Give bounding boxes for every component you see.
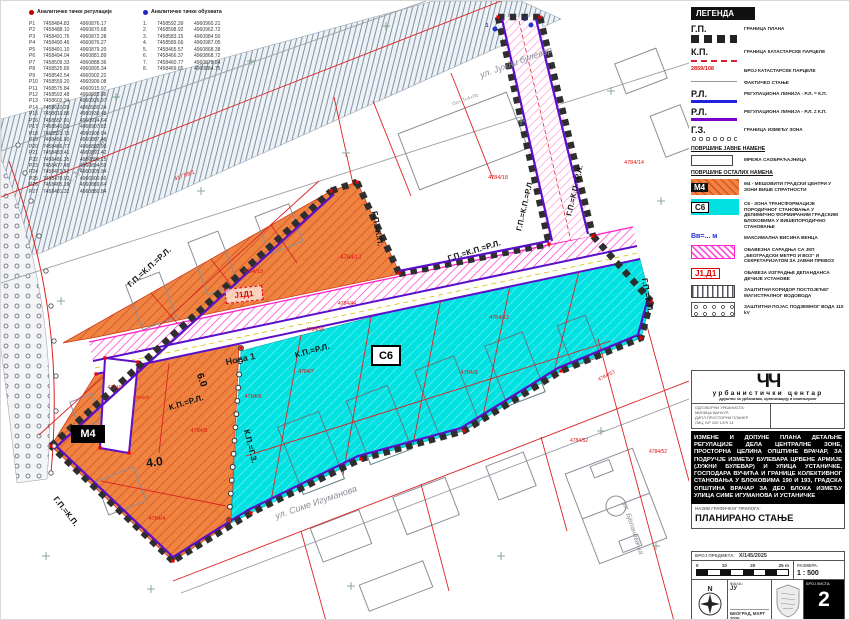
- legend-item-label: МАКСИМАЛНА ВИСИНА ВЕНЦА: [744, 233, 818, 241]
- map-label: ул. Бјелановачка: [620, 501, 644, 556]
- legend-item-label: ГРАНИЦА ИЗМЕЂУ ЗОНА: [744, 125, 803, 133]
- legend-item-label: МРЕЖА САОБРАЋАЈНИЦА: [744, 155, 806, 163]
- m4-symbol-icon: М4: [691, 179, 739, 195]
- case-number: X/145/2025: [739, 553, 767, 559]
- case-number-block: БРОЈ ПРЕДМЕТА: X/145/2025: [691, 551, 845, 561]
- zone-label-s6: С6: [371, 345, 401, 366]
- project-title: ИЗМЕНЕ И ДОПУНЕ ПЛАНА ДЕТАЉНЕ РЕГУЛАЦИЈЕ…: [691, 431, 845, 505]
- scale-bar-segments: [696, 569, 789, 576]
- scale-block: 0 10 20 25 m РАЗМЕРА: 1 : 500: [691, 561, 845, 580]
- j1d1-symbol-icon: Ј1,Д1: [691, 268, 739, 280]
- scale-bar: 0 10 20 25 m: [692, 561, 793, 579]
- zone-m4-lower: [51, 344, 239, 561]
- parcel-symbol-icon: 2859/108: [691, 66, 739, 73]
- legend-item-label: ГРАНИЦА ПЛАНА: [744, 24, 784, 32]
- map-label: 4784/18: [488, 175, 508, 181]
- firm-logo: ЧЧ: [696, 373, 840, 390]
- plan-sheet: ул. Јужни булеварул. Јужни булеварул. Си…: [0, 0, 850, 620]
- legend-item-label: РЕГУЛАЦИОНА ЛИНИЈА - Р.Л. = К.П.: [744, 89, 827, 97]
- map-label: 4784/8: [245, 394, 262, 400]
- svg-text:N: N: [707, 586, 712, 593]
- point-row: 8.7458469.654960884.75: [143, 66, 231, 72]
- legend-list: Г.П.ГРАНИЦА ПЛАНАК.П.ГРАНИЦА КАТАСТАРСКЕ…: [691, 24, 845, 370]
- map-label: 4784/9: [461, 370, 478, 376]
- scale-value-box: РАЗМЕРА: 1 : 500: [793, 561, 844, 579]
- phase-cell: ФАЗА: ЈУ БЕОГРАД, МАРТ 2025.: [728, 580, 772, 620]
- case-number-label: БРОЈ ПРЕДМЕТА:: [695, 553, 735, 558]
- responsible-planner: ОДГОВОРНИ УРБАНИСТА: МИЛИЦА ВАНЧУР, ДИПЛ…: [692, 404, 771, 428]
- phase-value: ЈУ: [730, 586, 769, 609]
- map-label: По+П+4+Пс: [452, 92, 480, 107]
- map-label: Г.П.=К.П.=Р.Л.: [126, 245, 173, 289]
- rl2-symbol-icon: Р.Л.: [691, 107, 739, 121]
- sheet-number: 2: [804, 588, 844, 612]
- legend-item-j1d1: Ј1,Д1ОБАВЕЗА ИЗГРАДЊЕ ДЕПАНДАНСА ДЕЧИЈЕ …: [691, 268, 845, 281]
- map-label: 4784/5: [191, 428, 208, 434]
- legend-item-label: ОБАВЕЗНА САРАДЊА СА ЈКП „БЕОГРАДСКИ МЕТР…: [744, 245, 845, 264]
- rl1-symbol-icon: Р.Л.: [691, 89, 739, 103]
- sheet-number-cell: БРОЈ ЛИСТА: 2: [804, 580, 844, 620]
- drawing-name: ПЛАНИРАНО СТАЊЕ: [695, 513, 841, 524]
- legend-item-rl2: Р.Л.РЕГУЛАЦИОНА ЛИНИЈА - Р.Л. ≠ К.П.: [691, 107, 845, 121]
- stamp-cell: [772, 580, 804, 620]
- gp-symbol-icon: Г.П.: [691, 24, 739, 43]
- legend-item-kv: ЗАШТИТНИ ПОЈАС ПОДЗЕМНОГ ВОДА 110 kV: [691, 302, 845, 317]
- legend-item-label: БРОЈ КАТАСТАРСКЕ ПАРЦЕЛЕ: [744, 66, 816, 74]
- legend-title: ЛЕГЕНДА: [691, 7, 755, 20]
- coverage-table-title: Аналитичке тачке обухвата: [151, 9, 222, 15]
- map-label: Г.П.=К.П.=Р.Л.: [514, 179, 534, 232]
- legend-item-gp: Г.П.ГРАНИЦА ПЛАНА: [691, 24, 845, 43]
- map-label: 4784/7: [298, 369, 314, 375]
- responsible-block: ОДГОВОРНИ УРБАНИСТА: МИЛИЦА ВАНЧУР, ДИПЛ…: [691, 404, 845, 429]
- legend-item-kp: К.П.ГРАНИЦА КАТАСТАРСКЕ ПАРЦЕЛЕ: [691, 47, 845, 62]
- legend-item-s6: С6С6 - ЗОНА ТРАНСФОРМАЦИЈЕ ПОРОДИЧНОГ СТ…: [691, 199, 845, 229]
- legend-item-label: ЗАШТИТНИ ПОЈАС ПОДЗЕМНОГ ВОДА 110 kV: [744, 302, 845, 315]
- map-label: 4784/2: [107, 385, 123, 391]
- legend-section-header: ПОВРШИНЕ ОСТАЛИХ НАМЕНА: [691, 170, 845, 176]
- map-label: Г.П.=К.П.: [52, 495, 81, 528]
- gz-symbol-icon: Г.З.: [691, 125, 739, 142]
- sports-field: [565, 448, 667, 563]
- map-label: 1: [485, 23, 488, 29]
- red-dot-icon: [29, 10, 34, 15]
- kp-symbol-icon: К.П.: [691, 47, 739, 62]
- legend-item-vodovod: ЗАШТИТНИ КОРИДОР ПОСТОЈЕЋЕГ МАГИСТРАЛНОГ…: [691, 285, 845, 298]
- vv-symbol-icon: Вв=... м: [691, 233, 739, 241]
- sidebar: ЛЕГЕНДА Г.П.ГРАНИЦА ПЛАНАК.П.ГРАНИЦА КАТ…: [691, 7, 845, 620]
- scale-value: 1 : 500: [797, 570, 841, 577]
- fact-symbol-icon: [691, 78, 739, 82]
- seal-icon: [775, 584, 801, 618]
- firm-block: ЧЧ урбанистички центар друштво за урбани…: [691, 370, 845, 404]
- legend-item-rl1: Р.Л.РЕГУЛАЦИОНА ЛИНИЈА - Р.Л. = К.П.: [691, 89, 845, 103]
- map-label: 4784/52: [570, 438, 588, 444]
- map-label: 4784/52: [649, 449, 667, 455]
- place-date: БЕОГРАД, МАРТ 2025.: [730, 609, 769, 620]
- firm-tagline: друштво за урбанизам, организацију и инж…: [696, 397, 840, 401]
- firm-name: урбанистички центар: [696, 390, 840, 397]
- sheet-number-label: БРОЈ ЛИСТА:: [806, 582, 830, 586]
- map-label: 4784/12: [489, 315, 509, 321]
- legend-item-label: ЗАШТИТНИ КОРИДОР ПОСТОЈЕЋЕГ МАГИСТРАЛНОГ…: [744, 285, 845, 298]
- metro-symbol-icon: [691, 245, 739, 259]
- legend-item-label: ОБАВЕЗА ИЗГРАДЊЕ ДЕПАНДАНСА ДЕЧИЈЕ УСТАН…: [744, 268, 845, 281]
- legend-item-metro: ОБАВЕЗНА САРАДЊА СА ЈКП „БЕОГРАДСКИ МЕТР…: [691, 245, 845, 264]
- blue-dot-icon: [143, 10, 148, 15]
- drawing-name-label: НАЗИВ ГРАФИЧКОГ ПРИЛОГА:: [695, 506, 841, 511]
- compass: N: [692, 580, 728, 620]
- coverage-points-table: Аналитичке тачке обухвата 1.7458592.3949…: [143, 9, 231, 195]
- legend-item-label: ФАКТИЧКО СТАЊЕ: [744, 78, 789, 86]
- legend-item-label: С6 - ЗОНА ТРАНСФОРМАЦИЈЕ ПОРОДИЧНОГ СТАН…: [744, 199, 845, 229]
- map-label: 4784/20: [133, 395, 150, 400]
- legend-item-m4: М4М4 - МЕШОВИТИ ГРАДСКИ ЦЕНТРИ У ЗОНИ ВИ…: [691, 179, 845, 195]
- regulation-table-title: Аналитичке тачке регулације: [37, 9, 112, 15]
- zone-label-m4: М4: [71, 425, 105, 443]
- stamp-row: N ФАЗА: ЈУ БЕОГРАД, МАРТ 2025. БРОЈ ЛИСТ…: [691, 580, 845, 620]
- legend-section-header: ПОВРШИНЕ ЈАВНЕ НАМЕНЕ: [691, 146, 845, 152]
- legend-item-fact: ФАКТИЧКО СТАЊЕ: [691, 78, 845, 86]
- map-canvas: ул. Јужни булеварул. Јужни булеварул. Си…: [1, 1, 689, 620]
- signature-box: [771, 404, 844, 428]
- point-row: Р277458481.324960880.84: [29, 189, 117, 195]
- s6-symbol-icon: С6: [691, 199, 739, 215]
- vodovod-symbol-icon: [691, 285, 739, 298]
- legend-item-road: МРЕЖА САОБРАЋАЈНИЦА: [691, 155, 845, 166]
- scale-label: РАЗМЕРА:: [797, 563, 841, 568]
- legend-item-gz: Г.З.ГРАНИЦА ИЗМЕЂУ ЗОНА: [691, 125, 845, 142]
- kv-symbol-icon: [691, 302, 739, 317]
- map-label: 4784/44: [338, 301, 356, 307]
- map-label: 4.0: [145, 454, 164, 470]
- legend-item-parcel: 2859/108БРОЈ КАТАСТАРСКЕ ПАРЦЕЛЕ: [691, 66, 845, 74]
- legend-item-vv: Вв=... мМАКСИМАЛНА ВИСИНА ВЕНЦА: [691, 233, 845, 241]
- map-label: 2: [523, 17, 526, 23]
- analytic-point-tables: Аналитичке тачке регулације Р17458484.83…: [29, 9, 231, 195]
- map-label: 4784/58: [306, 327, 324, 333]
- regulation-points-table: Аналитичке тачке регулације Р17458484.83…: [29, 9, 117, 195]
- map-label: 4784/4: [149, 516, 166, 522]
- drawing-name-block: НАЗИВ ГРАФИЧКОГ ПРИЛОГА: ПЛАНИРАНО СТАЊЕ: [691, 504, 845, 529]
- map-label: 4784/13: [243, 269, 263, 275]
- north-arrow-icon: N: [695, 583, 725, 619]
- legend-item-label: РЕГУЛАЦИОНА ЛИНИЈА - Р.Л. ≠ К.П.: [744, 107, 827, 115]
- road-symbol-icon: [691, 155, 739, 166]
- legend-item-label: М4 - МЕШОВИТИ ГРАДСКИ ЦЕНТРИ У ЗОНИ ВИШЕ…: [744, 179, 845, 192]
- map-label: 4784/17: [340, 255, 362, 261]
- map-label: 4784/14: [624, 160, 644, 166]
- legend-item-label: ГРАНИЦА КАТАСТАРСКЕ ПАРЦЕЛЕ: [744, 47, 825, 55]
